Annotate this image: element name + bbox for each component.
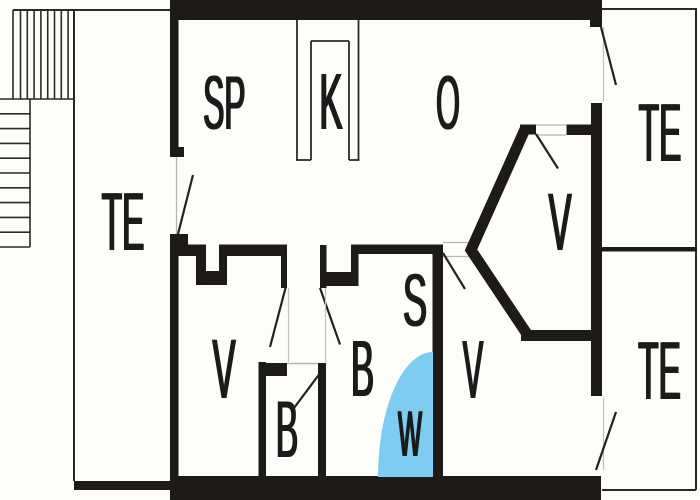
svg-text:W: W <box>399 398 423 470</box>
svg-text:V: V <box>213 322 236 416</box>
svg-text:K: K <box>320 58 343 147</box>
svg-text:V: V <box>549 178 572 268</box>
svg-text:TE: TE <box>639 88 682 180</box>
svg-text:V: V <box>464 325 485 416</box>
svg-text:B: B <box>352 325 375 414</box>
svg-text:SP: SP <box>204 61 246 146</box>
svg-text:TE: TE <box>639 326 682 418</box>
svg-text:B: B <box>277 385 300 475</box>
svg-text:TE: TE <box>102 177 145 269</box>
svg-text:O: O <box>437 62 461 146</box>
svg-text:S: S <box>404 260 428 343</box>
